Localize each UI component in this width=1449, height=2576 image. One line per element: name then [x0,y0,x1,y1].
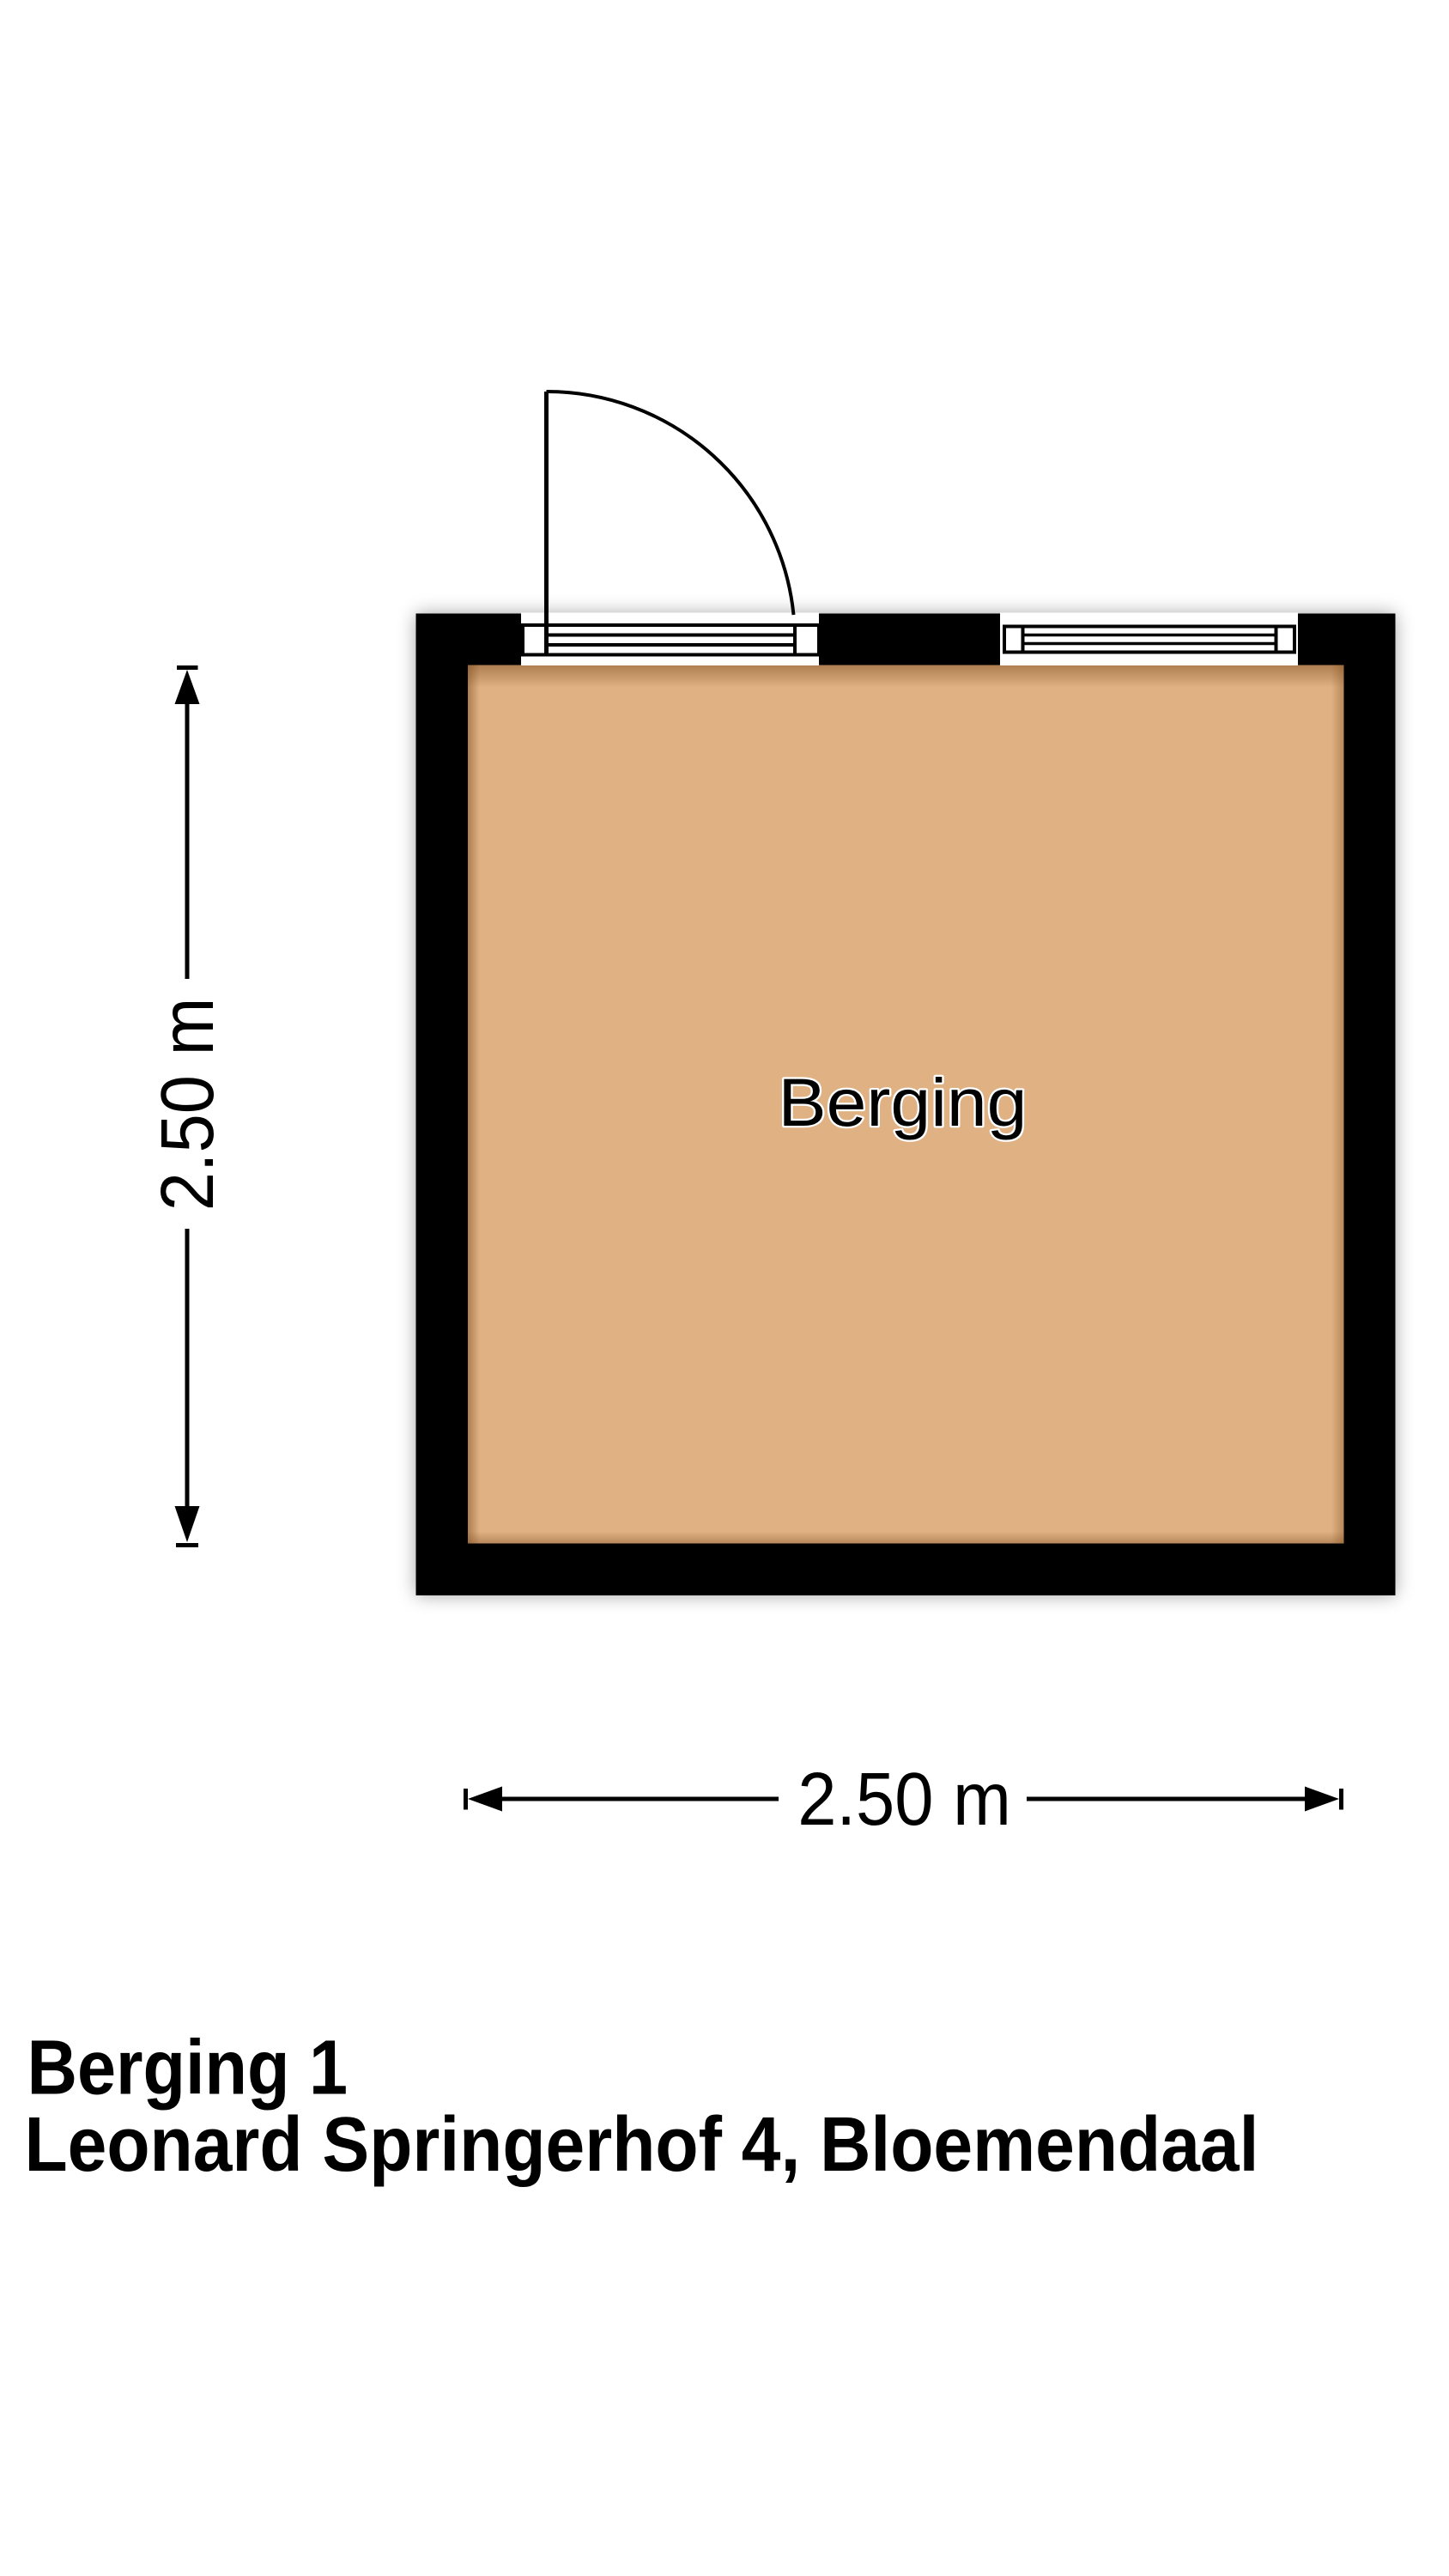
svg-text:Berging 1: Berging 1 [27,2025,349,2111]
svg-text:Berging: Berging [779,1065,1028,1140]
svg-text:2.50 m: 2.50 m [145,998,228,1212]
svg-text:2.50 m: 2.50 m [797,1757,1011,1840]
svg-text:Leonard Springerhof 4, Bloemen: Leonard Springerhof 4, Bloemendaal [25,2102,1259,2188]
